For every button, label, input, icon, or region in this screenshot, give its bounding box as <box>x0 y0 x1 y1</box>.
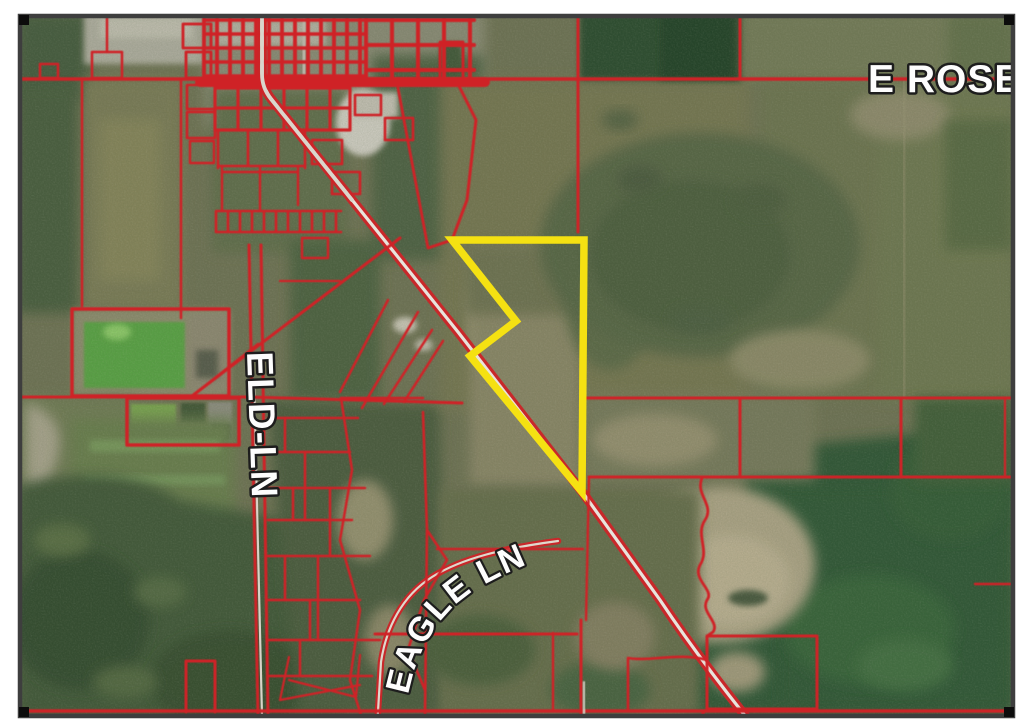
svg-text:ELD-LN: ELD-LN <box>239 351 285 500</box>
svg-text:E ROSEB: E ROSEB <box>868 58 1024 101</box>
